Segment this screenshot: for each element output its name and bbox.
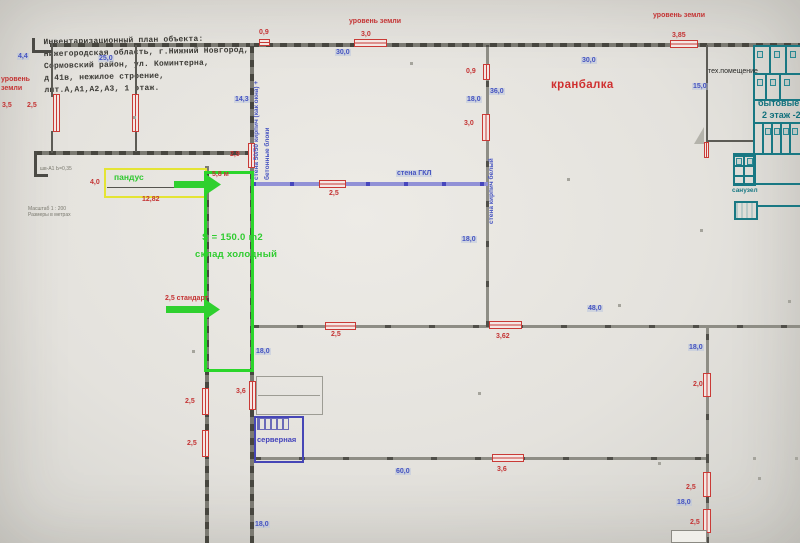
second-floor-label: 2 этаж -21 bbox=[762, 111, 800, 120]
dim-door-0-9-top: 0,9 bbox=[259, 29, 269, 36]
labels-layer: уровеньземли3,52,54,425,00,9уровень земл… bbox=[0, 0, 800, 543]
dim-door-2-5-west-a: 2,5 bbox=[185, 398, 195, 405]
dim-door-3-85: 3,85 bbox=[672, 32, 686, 39]
dim-gate-2-5-strip: 2,5 bbox=[27, 102, 37, 109]
dim-span-30-0-right: 30,0 bbox=[581, 57, 597, 64]
dim-strip-width-4-4: 4,4 bbox=[17, 53, 29, 60]
sklad-name-label: склад холодный bbox=[195, 250, 277, 260]
ground-level-left-line1: уровень bbox=[1, 76, 30, 83]
ground-level-left-line2: земли bbox=[1, 85, 22, 92]
dim-span-30-0-left: 30,0 bbox=[335, 49, 351, 56]
dim-2-5-standart: 2,5 стандарт bbox=[165, 295, 208, 302]
dim-gate-3-5: 3,5 bbox=[2, 102, 12, 109]
ground-level-center: уровень земли bbox=[349, 18, 401, 25]
dim-strip-length-25-0: 25,0 bbox=[98, 55, 114, 62]
crane-beam-label: кранбалка bbox=[551, 79, 614, 91]
dim-door-2-5-gkl: 2,5 bbox=[329, 190, 339, 197]
wall-note-white-brick: стена кирпич белый bbox=[489, 152, 496, 224]
sanuzel-label: санузел bbox=[732, 188, 758, 195]
dim-span-36-0: 36,0 bbox=[489, 88, 505, 95]
dim-door-2-0: 2,0 bbox=[693, 381, 703, 388]
dim-span-18-0-west: 18,0 bbox=[255, 348, 271, 355]
dim-door-2-9: 2,9 bbox=[230, 151, 240, 158]
floor-plan-photo: Инвентаризационный план объекта: Нижегор… bbox=[0, 0, 800, 543]
dim-door-2-5-west-b: 2,5 bbox=[187, 440, 197, 447]
dim-door-3-6-lower: 3,6 bbox=[497, 466, 507, 473]
dim-span-18-0-east-bottom: 18,0 bbox=[676, 499, 692, 506]
dim-door-2-5-east-a: 2,5 bbox=[686, 484, 696, 491]
scale-note-line2: Размеры в метрах bbox=[28, 213, 71, 218]
dim-door-3-6-west: 3,6 bbox=[236, 388, 246, 395]
server-room-label: серверная bbox=[257, 436, 296, 444]
dim-wall-14-3: 14,3 bbox=[234, 96, 250, 103]
dim-span-18-0-east-mid: 18,0 bbox=[688, 344, 704, 351]
ground-level-right: уровень земли bbox=[653, 12, 705, 19]
dim-door-2-5-east-b: 2,5 bbox=[690, 519, 700, 526]
dim-door-3-62: 3,62 bbox=[496, 333, 510, 340]
dim-span-18-0-brickwall-bottom: 18,0 bbox=[461, 236, 477, 243]
wall-note-brick-blocks-line2: бетонные блоки bbox=[265, 70, 272, 180]
dim-door-3-0-brickwall: 3,0 bbox=[464, 120, 474, 127]
dim-door-3-0-top: 3,0 bbox=[361, 31, 371, 38]
dim-door-0-9-brickwall: 0,9 bbox=[466, 68, 476, 75]
dim-ramp-4-0: 4,0 bbox=[90, 179, 100, 186]
dim-sklad-width-5-8: 5,8 м bbox=[212, 171, 229, 178]
dim-span-18-0-brickwall-top: 18,0 bbox=[466, 96, 482, 103]
wall-note-brick-blocks-line1: стена 50/50 кирпич (как окна) + bbox=[254, 48, 261, 180]
dim-span-48-0: 48,0 bbox=[587, 305, 603, 312]
ramp-label: пандус bbox=[114, 173, 144, 182]
utility-rooms-label: бытовые п bbox=[758, 99, 800, 108]
dim-door-2-5-midwall: 2,5 bbox=[331, 331, 341, 338]
dim-span-15-0-tech: 15,0 bbox=[692, 83, 708, 90]
wall-note-gkl: стена ГКЛ bbox=[396, 170, 432, 177]
dim-span-18-0-west-bottom: 18,0 bbox=[254, 521, 270, 528]
wall-mark-note: шв-А1 Ь=0,35 bbox=[40, 167, 72, 172]
sklad-area-label: S = 150.0 m2 bbox=[202, 233, 263, 243]
dim-ramp-12-82: 12,82 bbox=[142, 196, 160, 203]
dim-span-60-0: 60,0 bbox=[395, 468, 411, 475]
tech-room-label: тех.помещение bbox=[708, 68, 758, 75]
